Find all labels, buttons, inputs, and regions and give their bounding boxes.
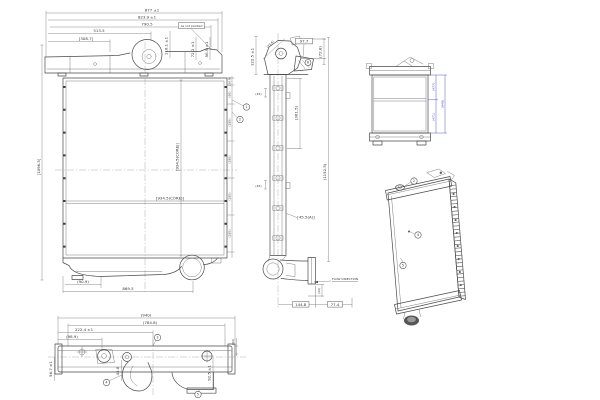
front-view: 877 ±1 823.9 ±1 790.5 513.5 [308.7] 110.…	[36, 8, 250, 293]
bottom-tank	[63, 255, 221, 280]
side-view: 122.5 ±1 (73.6) 97.7 (72.8) 6	[249, 33, 358, 308]
dim-outlet-x: 144.8	[295, 302, 307, 307]
dim-bracket-width: [308.7]	[79, 36, 94, 41]
dim-bottom-width: 869.5	[122, 286, 134, 291]
outlet-opening	[407, 317, 416, 323]
drawing-sheet: 877 ±1 823.9 ±1 790.5 513.5 [308.7] 110.…	[0, 0, 600, 400]
dim-mounting-span: (784.8)	[143, 320, 158, 325]
front-top-dimension-lines	[46, 11, 222, 60]
callout-number: 2	[239, 118, 241, 122]
core	[55, 42, 237, 292]
callout-number: 6	[307, 61, 309, 65]
dim-bracket-diagonal: (73.6)	[266, 40, 275, 49]
callout-number: 4	[105, 381, 107, 385]
dim-overall-height: [1096.5]	[36, 158, 41, 175]
dim-overall-height-side: (1152.5)	[322, 163, 327, 180]
dim-upper-half: (477)	[432, 83, 436, 91]
dim-bracket-offset: (72.8)	[318, 46, 323, 58]
dim-tank-height-1: 110.1 ±1	[164, 36, 169, 55]
rear-view-body	[367, 57, 434, 145]
dim-filler-width: 513.5	[93, 28, 105, 33]
callout-number: 3	[156, 336, 158, 340]
dim-depth: [45.5(A)]	[297, 214, 315, 219]
callout-number: 5	[197, 393, 199, 397]
dim-core-height: [934.5(CORE)]	[175, 142, 180, 171]
bottom-view: (940) (784.8) 222.4 ±1 (98.9) 56.7 ±1 45…	[48, 313, 246, 398]
flow-arrow	[314, 281, 318, 284]
note-not-painted: As not painted	[181, 24, 203, 28]
iso-body	[386, 169, 466, 319]
dim-chain-6: (185)	[228, 229, 232, 237]
dim-overall-width: 877 ±1	[145, 8, 160, 13]
dim-bracket-height: 122.5 ±1	[249, 47, 254, 66]
dim-outlet-y: 77.4	[331, 302, 340, 307]
callout-number: 1	[245, 105, 247, 109]
dim-width-2: 823.9 ±1	[138, 15, 157, 20]
dim-chain-1: (36.9)	[228, 77, 232, 86]
dim-width-3: 790.5	[141, 22, 153, 27]
callout-number: 4	[417, 233, 419, 237]
rear-view: (477) (948) (471)	[367, 57, 448, 145]
dim-bottom-offset: (90.9)	[77, 279, 89, 284]
dim-mid-gap: (45)	[255, 184, 261, 188]
dim-bracket-offset-bottom: (98.9)	[66, 334, 78, 339]
dim-total-height: (948)	[441, 100, 445, 108]
dim-chain-5: (185)	[228, 192, 232, 200]
callout-number: 2	[413, 179, 415, 183]
dim-outlet-drop: (44)	[317, 288, 321, 294]
dim-upper-gap: (45)	[255, 92, 261, 96]
dim-chain-3: (185)	[228, 118, 232, 126]
dim-chain-2: (95)	[228, 91, 232, 97]
iso-bolts	[440, 172, 462, 286]
dim-tank-height-2: 72.2 ±1	[190, 41, 195, 57]
front-height-dimension-lines	[41, 45, 183, 280]
isometric-view: 2 4 5	[386, 169, 466, 326]
dim-bracket-width: 97.7	[300, 39, 309, 44]
dim-overall-bottom: (940)	[141, 313, 152, 318]
dim-core-height-label: [934.5(CORE)]	[156, 196, 185, 201]
flow-direction-label: FLOW DIRECTION	[332, 277, 358, 281]
dim-upper-span: (361.5)	[294, 105, 299, 120]
dim-filler-offset: 222.4 ±1	[75, 327, 94, 332]
radiator-technical-drawing: 877 ±1 823.9 ±1 790.5 513.5 [308.7] 110.…	[0, 0, 600, 400]
outlet-elbow	[263, 256, 316, 285]
side-column	[270, 75, 290, 256]
side-bracket-dimension-lines	[255, 37, 327, 75]
dim-depth-left: 56.7 ±1	[48, 361, 53, 377]
dim-depth-center: 45.8	[115, 366, 120, 375]
dim-chain-4: (185)	[228, 155, 232, 163]
top-tank	[45, 40, 222, 77]
dim-lower-half: (471)	[432, 113, 436, 121]
callout-number: 5	[402, 264, 404, 268]
